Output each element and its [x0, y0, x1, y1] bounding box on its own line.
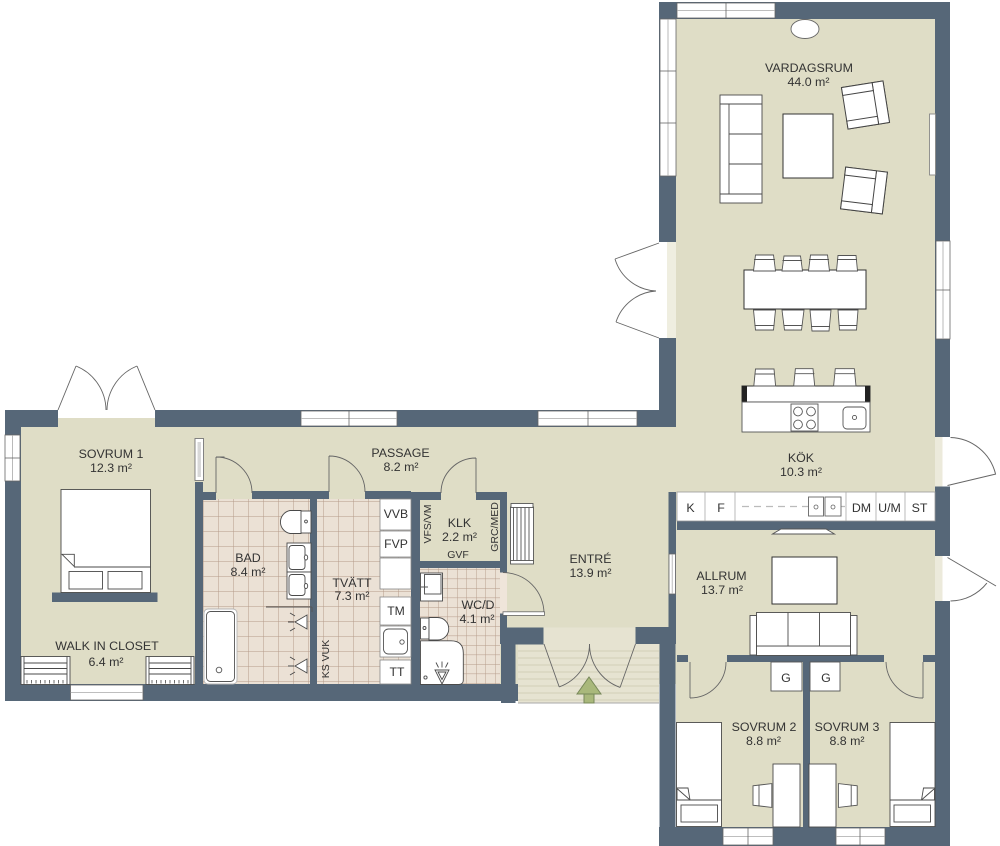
svg-text:13.9 m²: 13.9 m² — [569, 566, 611, 580]
svg-text:WALK IN CLOSET: WALK IN CLOSET — [55, 639, 159, 653]
svg-text:ALLRUM: ALLRUM — [696, 569, 746, 583]
svg-text:SOVRUM 1: SOVRUM 1 — [79, 447, 144, 461]
svg-text:G: G — [821, 671, 831, 685]
svg-text:8.2 m²: 8.2 m² — [383, 460, 418, 474]
svg-text:ST: ST — [912, 501, 928, 515]
svg-text:VARDAGSRUM: VARDAGSRUM — [765, 61, 853, 75]
svg-text:G: G — [781, 671, 791, 685]
svg-text:TM: TM — [387, 604, 405, 618]
svg-text:8.8 m²: 8.8 m² — [829, 734, 864, 748]
svg-text:FVP: FVP — [384, 537, 408, 551]
svg-text:TVÄTT: TVÄTT — [332, 576, 372, 590]
svg-text:6.4 m²: 6.4 m² — [88, 655, 123, 669]
svg-text:KÖK: KÖK — [788, 451, 815, 465]
svg-text:44.0 m²: 44.0 m² — [787, 75, 829, 89]
svg-text:VVB: VVB — [384, 507, 408, 521]
svg-text:GVF: GVF — [447, 549, 469, 561]
svg-text:8.4 m²: 8.4 m² — [230, 565, 265, 579]
svg-text:VFS/VM: VFS/VM — [422, 504, 434, 543]
svg-text:13.7 m²: 13.7 m² — [701, 583, 743, 597]
svg-text:GRC/MED: GRC/MED — [489, 502, 501, 552]
svg-text:TT: TT — [390, 665, 405, 679]
svg-text:SOVRUM 2: SOVRUM 2 — [732, 720, 797, 734]
svg-text:K: K — [686, 501, 695, 515]
svg-text:F: F — [717, 501, 725, 515]
svg-text:DM: DM — [852, 501, 871, 515]
svg-text:12.3 m²: 12.3 m² — [90, 461, 132, 475]
svg-text:BAD: BAD — [235, 551, 261, 565]
svg-text:8.8 m²: 8.8 m² — [746, 734, 781, 748]
svg-text:PASSAGE: PASSAGE — [371, 446, 429, 460]
svg-text:KS VUK: KS VUK — [320, 640, 332, 679]
svg-text:SOVRUM 3: SOVRUM 3 — [815, 720, 880, 734]
svg-text:ENTRÉ: ENTRÉ — [570, 551, 612, 566]
svg-text:4.1 m²: 4.1 m² — [459, 612, 494, 626]
svg-text:WC/D: WC/D — [461, 598, 494, 612]
svg-text:10.3 m²: 10.3 m² — [780, 465, 822, 479]
svg-text:7.3 m²: 7.3 m² — [334, 589, 369, 603]
svg-text:U/M: U/M — [878, 501, 901, 515]
svg-text:2.2 m²: 2.2 m² — [442, 530, 477, 544]
svg-text:KLK: KLK — [448, 516, 472, 530]
